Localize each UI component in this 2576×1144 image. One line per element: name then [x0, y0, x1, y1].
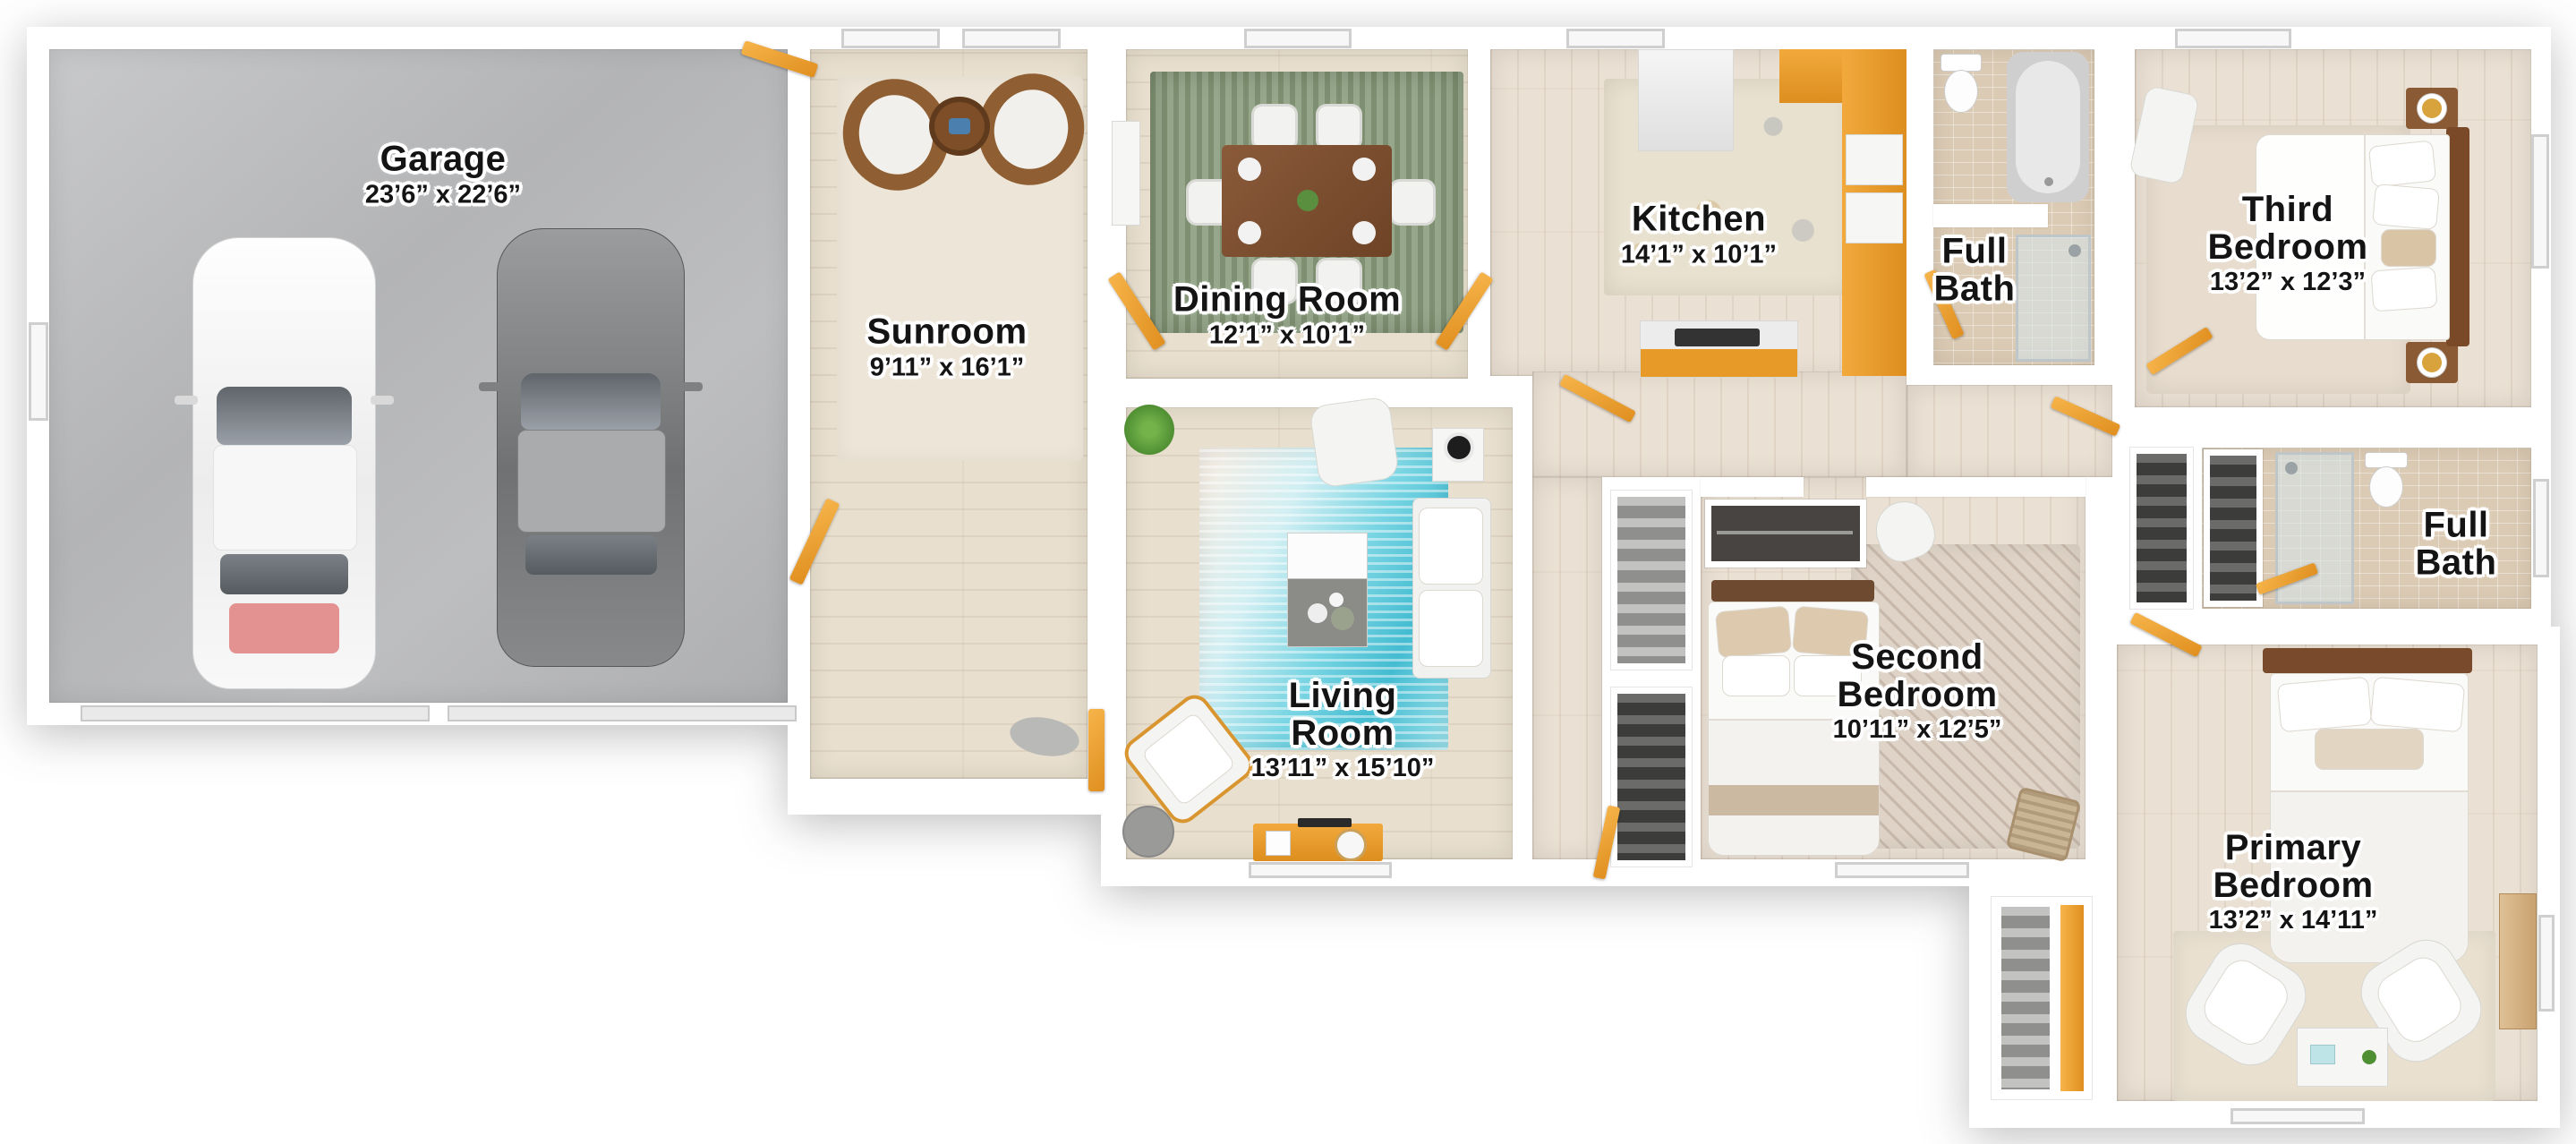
microwave [1846, 192, 1903, 243]
window [1835, 862, 1969, 878]
dining-table [1222, 145, 1392, 257]
potted-plant [1124, 405, 1174, 455]
hall-vertical-floor [1532, 477, 1602, 859]
room-dims: 14’1” x 10’1” [1556, 241, 1842, 268]
sofa-cushion [1419, 590, 1483, 667]
room-label-full-bath-right: Full Bath [2389, 507, 2523, 581]
centerpiece-plant [1297, 190, 1318, 211]
room-label-third-bedroom: Third Bedroom 13’2” x 12’3” [2176, 192, 2400, 295]
place-setting [1352, 158, 1376, 181]
window [2538, 915, 2555, 1012]
car-windshield [521, 373, 660, 431]
car-mirror [479, 382, 502, 391]
tv [1298, 818, 1352, 827]
room-label-living-room: Living Room 13’11” x 15’10” [1240, 678, 1446, 781]
room-name: Sunroom [804, 314, 1090, 352]
pillow-accent [2315, 729, 2424, 770]
room-label-second-bedroom: Second Bedroom 10’11” x 12’5” [1805, 639, 2029, 743]
room-name: Dining Room [1099, 282, 1475, 320]
garage-door [81, 705, 430, 721]
bath-closet-shelves [2204, 449, 2263, 607]
window [29, 322, 48, 421]
wall-oven [1846, 134, 1903, 185]
room-label-dining-room: Dining Room 12’1” x 10’1” [1099, 282, 1475, 349]
window [841, 29, 940, 48]
kitchen-peninsula [1640, 320, 1798, 378]
room-dims: 10’11” x 12’5” [1805, 716, 2029, 743]
car-mirror [175, 396, 198, 405]
bathtub [2007, 52, 2089, 202]
sideboard [1112, 121, 1140, 226]
room-dims: 23’6” x 22’6” [291, 181, 595, 208]
table-decor [1331, 607, 1354, 630]
white-car [192, 237, 376, 689]
window [962, 29, 1061, 48]
nightstand [2406, 342, 2458, 383]
room-name: Second Bedroom [1805, 639, 2029, 713]
console-decor [1335, 829, 1367, 861]
range-hood-counter [1638, 49, 1734, 151]
car-windshield [217, 387, 353, 446]
room-dims: 13’2” x 14’11” [2177, 907, 2410, 934]
room-dims: 12’1” x 10’1” [1099, 321, 1475, 348]
room-dims: 13’11” x 15’10” [1240, 755, 1446, 781]
table-decor [1308, 603, 1327, 623]
window [1249, 862, 1392, 878]
second-bedroom-top-wall-left [1701, 477, 1804, 497]
table-decor [1329, 593, 1343, 607]
lamp [2422, 353, 2442, 372]
toilet-bowl [2369, 466, 2403, 508]
car-mirror [371, 396, 394, 405]
floor-plan: Garage 23’6” x 22’6” Sunroom 9’11” x 16’… [0, 0, 2576, 1144]
room-name: Living Room [1240, 678, 1446, 752]
pillow [2368, 140, 2436, 187]
accent-chair [1309, 396, 1400, 489]
cooktop [1675, 329, 1760, 346]
plant-decor [2362, 1050, 2376, 1064]
room-label-full-bath-upper: Full Bath [1907, 233, 2042, 307]
closet-door [2060, 905, 2084, 1091]
room-name: Full Bath [2389, 507, 2523, 581]
throw-blanket [1709, 785, 1879, 815]
second-bedroom-top-wall-right [1866, 477, 2086, 497]
room-name: Full Bath [1907, 233, 2042, 307]
pillow [2277, 677, 2372, 733]
upper-bath-divider-wall [1933, 204, 2048, 227]
primary-closet [1992, 897, 2092, 1099]
sofa-cushion [1419, 508, 1483, 585]
bed-headboard [1711, 580, 1874, 602]
closet-rod [1717, 531, 1853, 534]
tv-console [1253, 824, 1383, 861]
window [1566, 29, 1665, 48]
pillow [1722, 655, 1790, 696]
shower-head [2285, 462, 2298, 474]
room-name: Kitchen [1556, 201, 1842, 239]
reach-in-closet [1705, 499, 1866, 568]
room-name: Garage [291, 141, 595, 179]
room-dims: 9’11” x 16’1” [804, 354, 1090, 380]
hall-closet-shelves [1611, 491, 1692, 670]
car-rear-window [220, 554, 349, 594]
wardrobe [2499, 893, 2537, 1029]
dining-chair [1389, 179, 1436, 226]
room-label-garage: Garage 23’6” x 22’6” [291, 141, 595, 209]
lamp [2422, 98, 2442, 118]
coffee-table [1287, 533, 1368, 647]
corridor-floor [1906, 385, 2112, 477]
toilet-bowl [1944, 70, 1978, 113]
room-label-primary-bedroom: Primary Bedroom 13’2” x 14’11” [2177, 830, 2410, 934]
gray-car [497, 228, 685, 667]
toilet [1941, 54, 1982, 72]
bathtub-drain [2044, 177, 2053, 186]
dining-chair [1316, 104, 1362, 150]
car-roof [213, 445, 358, 551]
garage-door [448, 705, 797, 721]
dining-chair [1251, 104, 1298, 150]
window [2533, 479, 2549, 577]
room-label-kitchen: Kitchen 14’1” x 10’1” [1556, 201, 1842, 269]
linen-closet-shelves [2130, 448, 2193, 609]
car-rear-window [525, 535, 657, 575]
pillow-accent [1715, 606, 1792, 659]
room-name: Third Bedroom [2176, 192, 2400, 266]
tray-decor [2310, 1045, 2335, 1064]
place-setting [1352, 221, 1376, 244]
car-mirror [679, 382, 703, 391]
window [2231, 1108, 2365, 1124]
bed-headboard [2263, 648, 2472, 673]
window [2531, 134, 2549, 269]
armchair-cushion [1141, 712, 1237, 807]
room-label-sunroom: Sunroom 9’11” x 16’1” [804, 314, 1090, 381]
bench-table [2297, 1028, 2388, 1087]
sofa [1412, 498, 1491, 679]
place-setting [1238, 221, 1261, 244]
floor-lamp [1122, 806, 1174, 858]
nightstand [2406, 88, 2458, 129]
room-dims: 13’2” x 12’3” [2176, 269, 2400, 295]
room-name: Primary Bedroom [2177, 830, 2410, 904]
window [2175, 29, 2291, 48]
table-decor [1447, 436, 1471, 459]
console-decor [1266, 831, 1291, 856]
side-table [929, 97, 990, 156]
car-roof [517, 430, 666, 533]
closet-shelves [2001, 907, 2050, 1089]
window [1244, 29, 1352, 48]
hall-closet-shelves [1611, 687, 1692, 867]
side-table [1432, 428, 1484, 482]
place-setting [1238, 158, 1261, 181]
front-door [1088, 709, 1105, 791]
table-decor [949, 118, 970, 134]
bathtub-basin [2016, 61, 2080, 193]
car-seats [229, 603, 339, 653]
chair-cushion [2196, 952, 2295, 1052]
shower-head [2068, 244, 2081, 257]
pillow [2370, 677, 2465, 733]
